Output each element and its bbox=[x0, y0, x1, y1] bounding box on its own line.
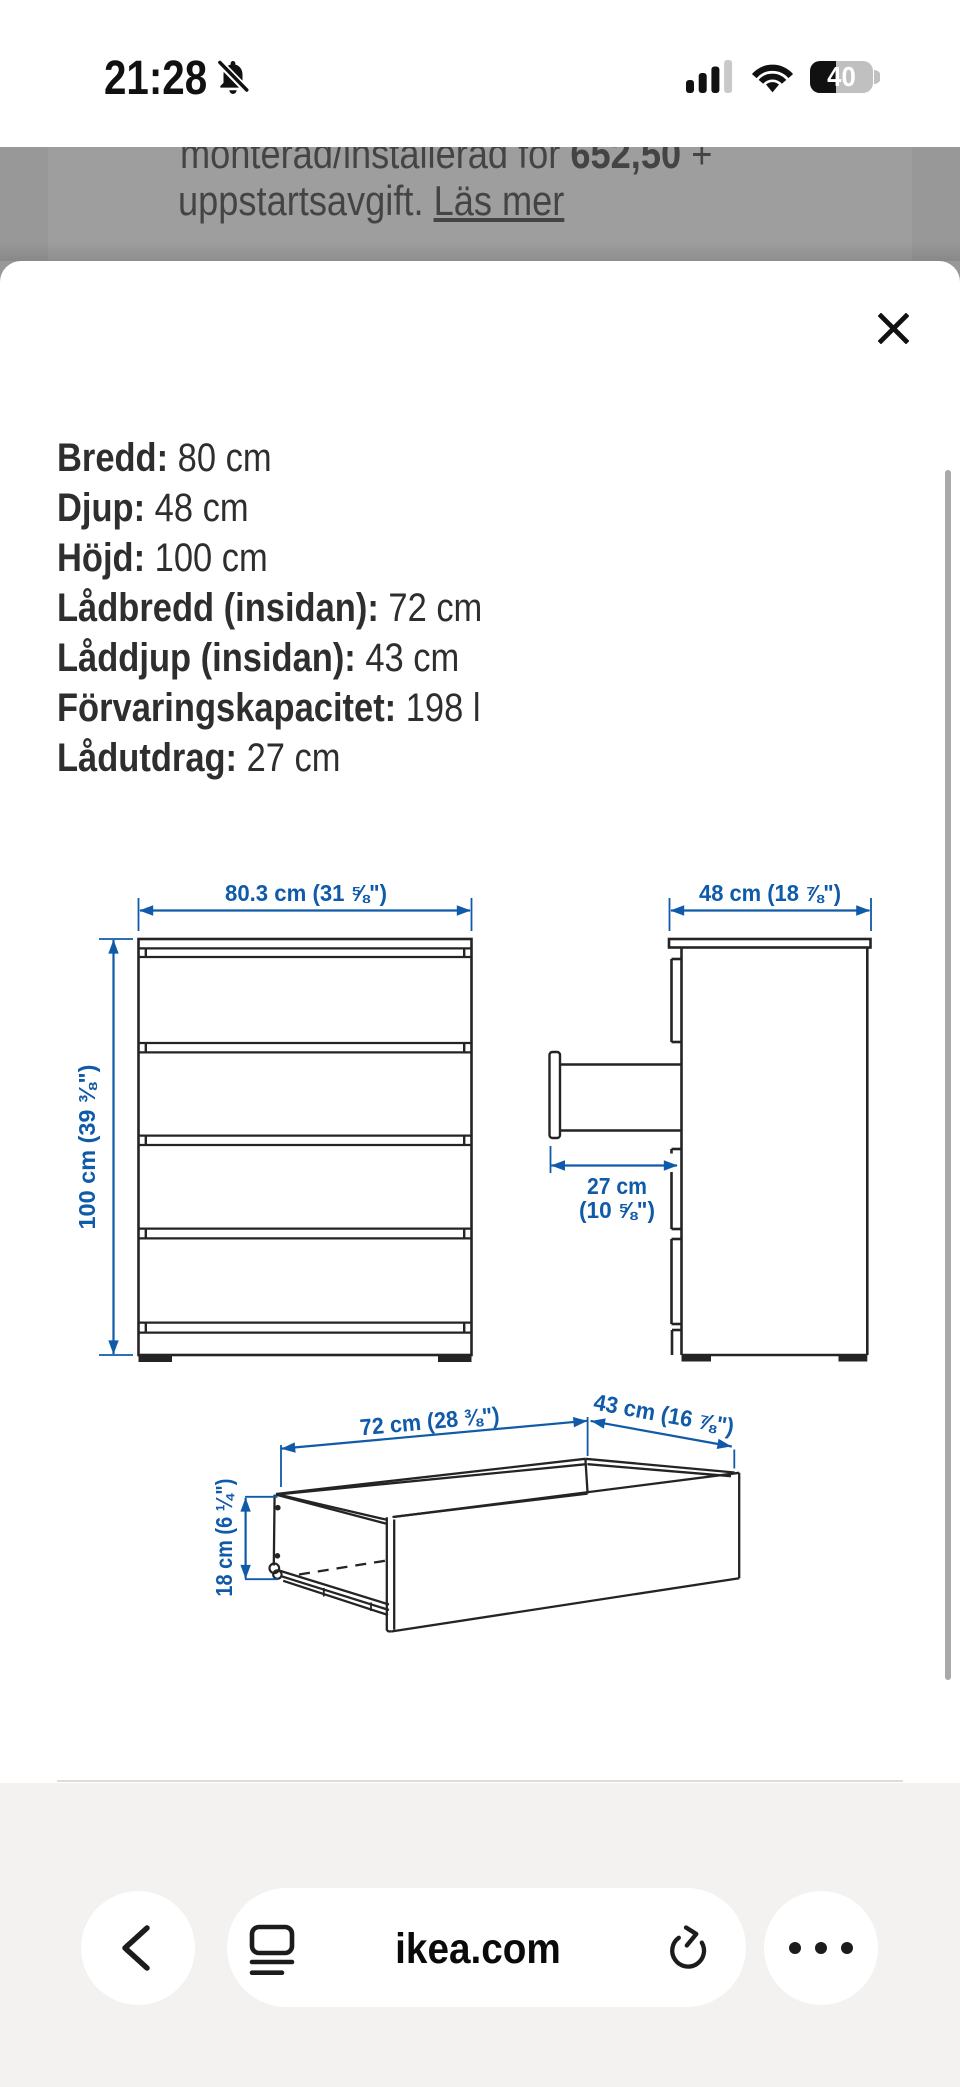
svg-text:43 cm (16 ⅞"): 43 cm (16 ⅞") bbox=[592, 1389, 736, 1440]
svg-text:(10 ⅝"): (10 ⅝") bbox=[579, 1197, 655, 1223]
svg-text:27 cm: 27 cm bbox=[587, 1173, 647, 1199]
svg-text:80.3 cm (31 ⅝"): 80.3 cm (31 ⅝") bbox=[225, 880, 387, 906]
svg-text:48 cm (18 ⅞"): 48 cm (18 ⅞") bbox=[699, 880, 841, 906]
svg-text:18 cm (6 ¼"): 18 cm (6 ¼") bbox=[211, 1479, 237, 1597]
svg-text:100 cm (39 ⅜"): 100 cm (39 ⅜") bbox=[74, 1065, 100, 1230]
